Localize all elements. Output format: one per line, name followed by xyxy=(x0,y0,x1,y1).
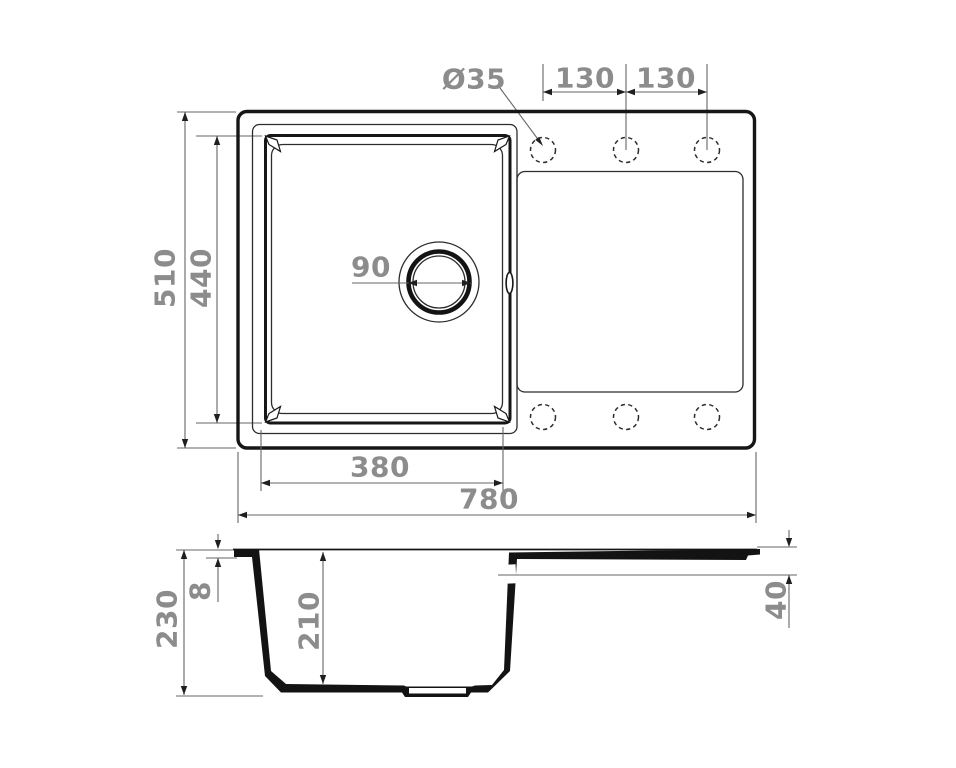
dim-label-drain-diameter: 90 xyxy=(351,251,391,284)
drain-recess-opening xyxy=(409,688,466,694)
sink-dimension-drawing: 130 130 Ø35 510 440 xyxy=(0,0,956,768)
dim-label-drainboard-height: 40 xyxy=(760,580,793,620)
dimension-rim-thickness: 8 xyxy=(184,534,238,602)
dimension-overall-width: 780 xyxy=(238,452,756,523)
faucet-hole-bottom-left xyxy=(531,405,556,430)
arrowhead xyxy=(182,112,188,121)
bowl-corner-chamfer xyxy=(495,136,510,152)
arrowhead xyxy=(543,89,552,96)
dimension-drainboard-height: 40 xyxy=(498,530,797,628)
arrowhead xyxy=(786,538,792,547)
top-view: 130 130 Ø35 510 440 xyxy=(149,62,757,524)
arrowhead xyxy=(214,414,220,423)
arrowhead xyxy=(747,512,756,518)
dim-label-overall-depth: 510 xyxy=(149,248,182,308)
drain-ring xyxy=(409,252,470,313)
side-view: 230 8 210 40 xyxy=(151,530,798,697)
drain-inner-edge xyxy=(413,256,465,308)
arrowhead xyxy=(215,540,221,549)
arrowhead xyxy=(698,89,707,96)
dim-label-overall-width: 780 xyxy=(459,483,519,516)
technical-drawing-canvas: 130 130 Ø35 510 440 xyxy=(0,0,956,768)
arrowhead xyxy=(617,89,626,96)
overflow-slot xyxy=(506,273,513,294)
dimension-hole-diameter: Ø35 xyxy=(442,63,543,147)
arrowhead xyxy=(215,558,221,567)
arrowhead xyxy=(320,675,326,684)
dimension-bowl-depth: 440 xyxy=(185,136,263,423)
sink-outline xyxy=(238,112,755,449)
drain: 90 xyxy=(351,242,479,322)
leader-line xyxy=(500,88,540,142)
arrowhead xyxy=(182,439,188,448)
arrowhead xyxy=(181,550,187,559)
dimension-hole-spacing: 130 130 xyxy=(543,62,707,151)
dim-label-hole-spacing-right: 130 xyxy=(636,62,696,95)
arrowhead xyxy=(181,686,187,695)
dimension-overall-height: 230 xyxy=(151,550,264,696)
faucet-hole-bottom-right xyxy=(695,405,720,430)
dimension-bowl-inner-depth: 210 xyxy=(293,552,327,684)
dimension-bowl-width: 380 xyxy=(261,427,503,491)
arrowhead xyxy=(214,136,220,145)
dim-label-hole-diameter: Ø35 xyxy=(442,63,506,96)
dim-label-bowl-width: 380 xyxy=(350,451,410,484)
dim-label-bowl-inner-depth: 210 xyxy=(293,591,326,651)
dim-label-overall-height: 230 xyxy=(151,589,184,649)
arrowhead xyxy=(238,512,247,518)
dim-label-hole-spacing-left: 130 xyxy=(555,62,615,95)
faucet-hole-bottom-middle xyxy=(614,405,639,430)
bowl-corner-chamfer xyxy=(495,407,510,423)
arrowhead xyxy=(626,89,635,96)
dim-label-bowl-depth: 440 xyxy=(185,248,218,308)
overflow-section-gap xyxy=(504,564,517,584)
faucet-hole-top-left xyxy=(531,138,556,163)
arrowhead xyxy=(261,480,270,486)
arrowhead xyxy=(320,552,326,561)
dim-label-rim-thickness: 8 xyxy=(184,581,217,601)
drainboard-outline xyxy=(517,172,743,393)
